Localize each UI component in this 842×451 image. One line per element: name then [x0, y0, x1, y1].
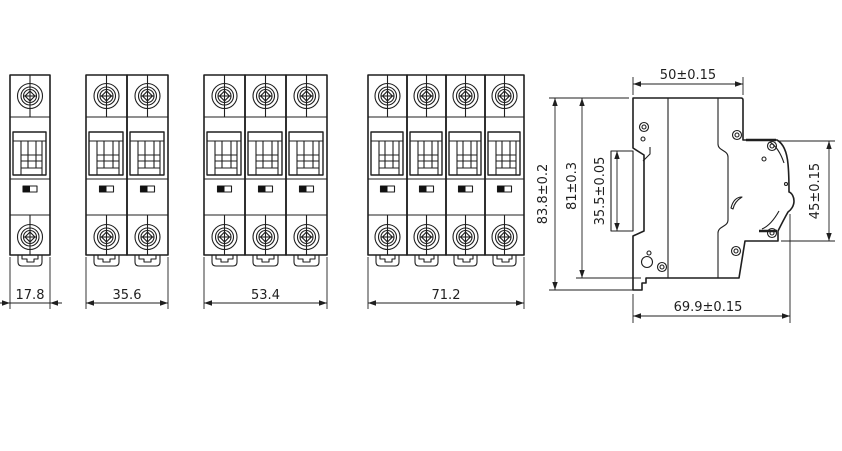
- dimension-label: 81±0.3: [565, 162, 580, 210]
- drawing-svg: 17.835.653.471.2: [0, 0, 842, 451]
- dim-top-width: 50±0.15: [633, 68, 743, 95]
- dimension-label: 50±0.15: [660, 68, 716, 83]
- dimension-label: 83.8±0.2: [536, 164, 551, 225]
- rivets: [640, 123, 788, 272]
- front-view-4-pole: 71.2: [368, 75, 524, 309]
- front-dim-label-3-pole: 53.4: [251, 288, 280, 303]
- dim-overall-height: 83.8±0.2: [536, 98, 641, 290]
- din-rail-slot: [611, 151, 633, 231]
- front-dim-label-1-pole: 17.8: [16, 288, 45, 303]
- dimension-label: 45±0.15: [808, 163, 823, 219]
- inner-contour: [718, 98, 728, 278]
- indicator-flag: [23, 186, 30, 192]
- front-dim-label-4-pole: 71.2: [432, 288, 461, 303]
- dim-din-slot: 35.5±0.05: [593, 151, 620, 231]
- indicator-flag: [498, 186, 505, 192]
- dimension-label: 69.9±0.15: [674, 300, 743, 315]
- indicator-flag: [300, 186, 307, 192]
- indicator-flag: [259, 186, 266, 192]
- indicator-flag: [218, 186, 225, 192]
- side-case-profile: [633, 98, 794, 290]
- front-view-1-pole: 17.8: [0, 75, 62, 309]
- technical-drawing: 17.835.653.471.2: [0, 0, 842, 451]
- front-view-3-pole: 53.4: [204, 75, 327, 309]
- indicator-flag: [459, 186, 466, 192]
- indicator-flag: [381, 186, 388, 192]
- indicator-flag: [100, 186, 107, 192]
- toggle-slit: [731, 197, 742, 209]
- front-wall-inner-bottom: [762, 211, 779, 229]
- indicator-flag: [141, 186, 148, 192]
- front-views-group: 17.835.653.471.2: [0, 75, 524, 309]
- indicator-flag: [420, 186, 427, 192]
- side-view-group: 50±0.15 83.8±0.2 81±0.3 35.5±0.05: [536, 68, 835, 323]
- dimension-label: 35.5±0.05: [593, 157, 608, 226]
- front-view-2-pole: 35.6: [86, 75, 168, 309]
- front-dim-label-2-pole: 35.6: [113, 288, 142, 303]
